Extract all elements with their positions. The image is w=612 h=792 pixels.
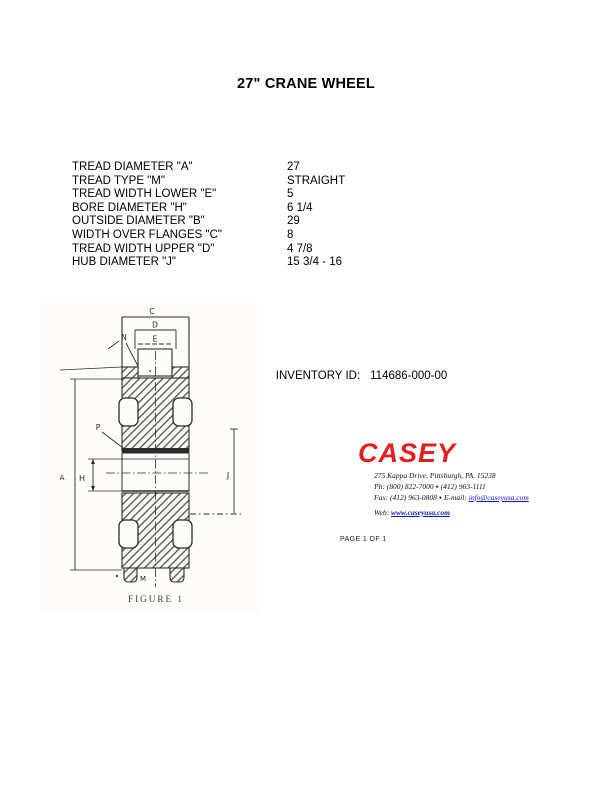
inventory-id-label: INVENTORY ID: [276, 370, 360, 382]
page-number: PAGE 1 OF 1 [340, 536, 387, 543]
spec-value: STRAIGHT [287, 175, 345, 189]
dim-label-h: H [79, 474, 85, 483]
crane-wheel-figure-svg: C D E N P A H J M FIGURE 1 [40, 303, 260, 613]
spec-label: TREAD WIDTH LOWER "E" [72, 188, 287, 202]
phone-numbers: Ph: (800) 822-7000 [374, 482, 434, 491]
web-label: Web: [374, 508, 389, 517]
page-title: 27" CRANE WHEEL [0, 76, 612, 92]
company-logo: CASEY [358, 440, 456, 467]
spec-row: WIDTH OVER FLANGES "C" 8 [72, 229, 345, 243]
spec-label: HUB DIAMETER "J" [72, 256, 287, 270]
spec-label: TREAD WIDTH UPPER "D" [72, 243, 287, 257]
dim-label-d: D [152, 321, 158, 330]
dim-label-j: J [226, 471, 229, 480]
spec-value: 29 [287, 215, 300, 229]
inventory-id-value: 114686-000-00 [370, 370, 447, 382]
spec-row: TREAD WIDTH LOWER "E" 5 [72, 188, 345, 202]
dim-label-m: M [140, 575, 146, 583]
fax-number: Fax: (412) 963-0808 [374, 493, 437, 502]
spec-row: BORE DIAMETER "H" 6 1/4 [72, 202, 345, 216]
company-info-block: 275 Kappa Drive, Pittsburgh, PA. 15238 P… [374, 471, 529, 518]
spec-row: OUTSIDE DIAMETER "B" 29 [72, 215, 345, 229]
spec-row: TREAD WIDTH UPPER "D" 4 7/8 [72, 243, 345, 257]
spec-row: TREAD TYPE "M" STRAIGHT [72, 175, 345, 189]
spec-value: 5 [287, 188, 293, 202]
spec-value: 27 [287, 161, 300, 175]
email-link[interactable]: info@caseyusa.com [469, 493, 529, 502]
dim-label-c: C [149, 307, 155, 316]
spec-list: TREAD DIAMETER "A" 27 TREAD TYPE "M" STR… [72, 161, 345, 270]
figure-drawing: C D E N P A H J M FIGURE 1 [40, 303, 260, 613]
dim-label-n: N [121, 333, 127, 342]
spec-label: OUTSIDE DIAMETER "B" [72, 215, 287, 229]
bullet-separator-icon: ● [437, 496, 444, 501]
figure-caption: FIGURE 1 [128, 594, 184, 604]
company-phone-line: Ph: (800) 822-7000●(412) 963-1111 [374, 482, 529, 494]
website-link[interactable]: www.caseyusa.com [391, 508, 450, 517]
spec-label: TREAD DIAMETER "A" [72, 161, 287, 175]
bullet-separator-icon: ● [434, 485, 441, 490]
company-fax-line: Fax: (412) 963-0808●E-mail: info@caseyus… [374, 493, 529, 505]
company-address: 275 Kappa Drive, Pittsburgh, PA. 15238 [374, 471, 529, 482]
inventory-id: INVENTORY ID:114686-000-00 [263, 358, 447, 394]
spec-label: TREAD TYPE "M" [72, 175, 287, 189]
spec-value: 6 1/4 [287, 202, 313, 216]
company-web-line: Web: www.caseyusa.com [374, 508, 529, 519]
spec-value: 4 7/8 [287, 243, 313, 257]
dim-label-a: A [60, 474, 65, 482]
spec-label: BORE DIAMETER "H" [72, 202, 287, 216]
spec-value: 8 [287, 229, 293, 243]
spec-row: HUB DIAMETER "J" 15 3/4 - 16 [72, 256, 345, 270]
spec-row: TREAD DIAMETER "A" 27 [72, 161, 345, 175]
dim-label-e: E [153, 335, 158, 344]
wheel-cross-section [40, 303, 260, 613]
spec-value: 15 3/4 - 16 [287, 256, 342, 270]
document-page: 27" CRANE WHEEL TREAD DIAMETER "A" 27 TR… [0, 0, 612, 792]
dim-label-p: P [96, 423, 101, 432]
phone-numbers-2: (412) 963-1111 [441, 482, 486, 491]
email-label: E-mail: [444, 493, 467, 502]
spec-label: WIDTH OVER FLANGES "C" [72, 229, 287, 243]
